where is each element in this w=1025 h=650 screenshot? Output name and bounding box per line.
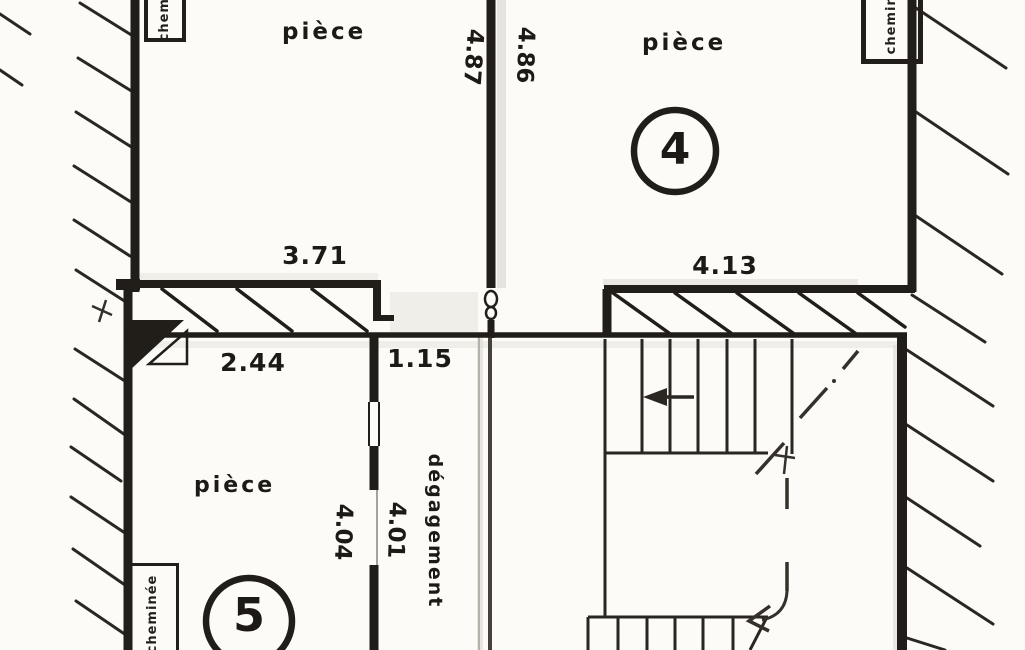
dimension-room4-width: 4.13 xyxy=(690,253,760,278)
room-label-piece-top-right: pièce xyxy=(642,32,722,55)
room-number-circles xyxy=(206,110,716,650)
dimension-corridor-depth: 4.01 xyxy=(380,490,409,571)
dimension-room1-width: 3.71 xyxy=(280,243,350,268)
stair-guide-line xyxy=(92,300,858,631)
staircase-lower xyxy=(588,617,768,650)
room-label-degagement: dégagement xyxy=(420,446,444,616)
chimney-label: cheminée xyxy=(157,0,173,42)
party-wall-hatch-right xyxy=(907,8,1008,650)
scan-shadows xyxy=(124,0,906,650)
dimension-room4-depth: 4.86 xyxy=(509,15,538,96)
chimney-box-bottom-left: cheminée xyxy=(127,563,179,650)
dimension-room1-depth: 4.87 xyxy=(455,16,487,98)
room-number-4: 4 xyxy=(647,128,703,172)
chimney-label: cheminée xyxy=(145,569,161,650)
staircase-upper xyxy=(605,339,792,617)
room-label-piece-bottom-left: pièce xyxy=(194,475,270,497)
chimney-box-top-left: cheminée xyxy=(144,0,186,42)
dimension-room5-width: 2.44 xyxy=(218,350,288,375)
party-wall-hatch-left xyxy=(0,3,133,635)
chimney-label: cheminée xyxy=(884,0,900,60)
room-label-piece-top-left: pièce xyxy=(282,21,362,44)
wall-band-right xyxy=(604,289,915,337)
walls xyxy=(116,0,912,650)
floorplan-drawing xyxy=(0,0,1025,650)
chimney-box-top-right: cheminée xyxy=(861,0,923,64)
door-pivot-icon xyxy=(485,291,497,307)
floor-plan: pièce pièce pièce dégagement 4 5 3.71 4.… xyxy=(0,0,1025,650)
dimension-room5-depth: 4.04 xyxy=(327,492,356,573)
room-number-5: 5 xyxy=(221,592,277,638)
dimension-corridor-width: 1.15 xyxy=(385,346,455,371)
stair-direction-arrow-icon xyxy=(643,388,667,406)
